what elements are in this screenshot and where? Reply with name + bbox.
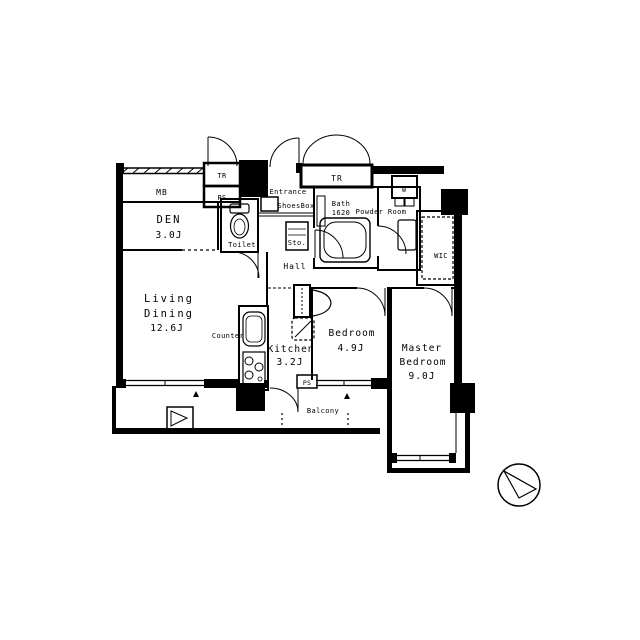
label-master-size: 9.0J [409, 371, 436, 382]
window-master [392, 455, 449, 461]
label-toilet: Toilet [228, 241, 256, 249]
label-tr-left: TR [217, 172, 227, 180]
label-balcony: Balcony [307, 407, 339, 415]
label-bedroom: Bedroom [328, 328, 375, 339]
label-den: DEN [157, 214, 182, 226]
label-living-1: Living [144, 293, 194, 305]
toilet-room [221, 199, 259, 278]
toilet-fixture [230, 204, 249, 238]
label-entrance: Entrance [270, 188, 307, 196]
washbasin [398, 220, 416, 250]
label-hall: Hall [283, 262, 306, 271]
shoes-box-fixture [261, 197, 278, 211]
den-room [117, 202, 218, 250]
compass-icon [498, 464, 540, 506]
label-kitchen: Kitchen [267, 344, 314, 355]
label-storage: Sto. [288, 239, 306, 247]
floor-plan-page: MB TR PS DEN 3.0J Toilet Entrance ShoesB… [0, 0, 640, 640]
kitchen-counter [239, 306, 268, 390]
bathtub [320, 218, 370, 262]
label-den-size: 3.0J [156, 230, 183, 241]
window-bedroom [316, 380, 371, 386]
window-direction-marks [193, 391, 350, 399]
stove [243, 352, 265, 384]
label-bath-size: 1620 [332, 209, 350, 217]
label-living-size: 12.6J [150, 323, 184, 334]
window-living [126, 380, 204, 386]
bath-door-arc [315, 230, 343, 258]
label-kitchen-size: 3.2J [277, 357, 304, 368]
toilet-door-arc [233, 252, 259, 278]
trunk-room-left-door-arc [208, 137, 237, 166]
master-door-arc [424, 288, 452, 316]
label-shoes-box: ShoesBox [278, 202, 315, 210]
label-master-1: Master [402, 343, 442, 354]
wic-room [417, 211, 458, 285]
floor-plan-drawing: MB TR PS DEN 3.0J Toilet Entrance ShoesB… [0, 0, 640, 640]
sink [243, 312, 265, 346]
label-tr-top: TR [331, 174, 343, 183]
balcony-door-arc [270, 388, 298, 412]
label-mb: MB [156, 188, 168, 197]
label-wic: WIC [434, 252, 448, 260]
label-bedroom-size: 4.9J [338, 343, 365, 354]
trunk-room-top-doors [303, 135, 370, 164]
label-ps-upper: PS [217, 194, 226, 202]
balcony-hatch [167, 407, 193, 429]
label-living-2: Dining [144, 308, 194, 320]
fridge-space [292, 318, 314, 340]
closet-bifold-doors [313, 290, 331, 316]
bedroom-door-arc [357, 288, 385, 316]
label-bath: Bath [332, 200, 350, 208]
bedroom-door [357, 288, 385, 316]
label-powder-room: Powder Room [356, 208, 407, 216]
balcony-door [270, 388, 298, 412]
powder-room [376, 176, 420, 270]
label-counter: Counter [212, 332, 244, 340]
wic-hanger-dashed [422, 217, 453, 279]
label-ps-lower: PS [303, 379, 311, 387]
entrance-door-arc [270, 138, 299, 167]
label-master-2: Bedroom [399, 357, 446, 368]
label-washer: W [402, 186, 406, 194]
master-door [424, 288, 452, 316]
balcony-partition-marks [282, 413, 348, 429]
